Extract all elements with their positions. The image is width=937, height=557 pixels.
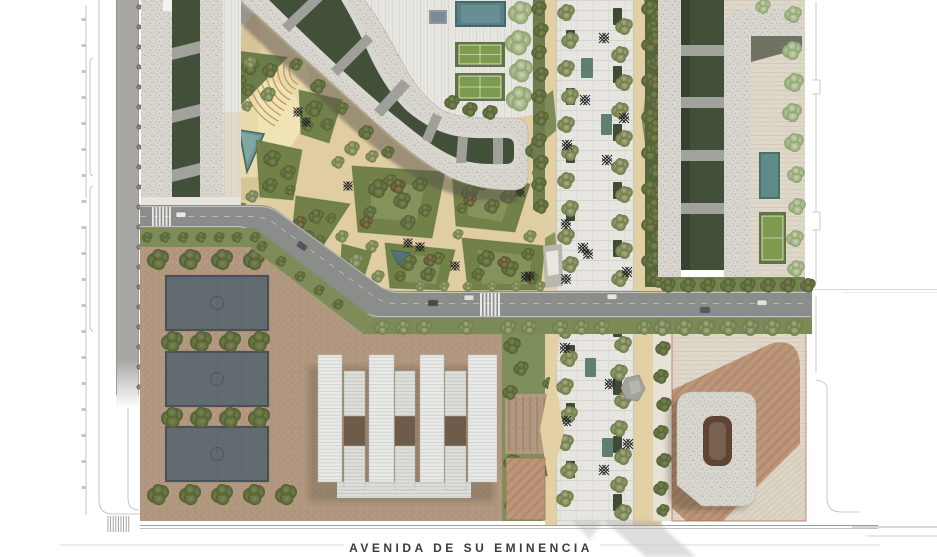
svg-text:AVENIDA DE SU EMINENCIA: AVENIDA DE SU EMINENCIA	[349, 541, 593, 555]
